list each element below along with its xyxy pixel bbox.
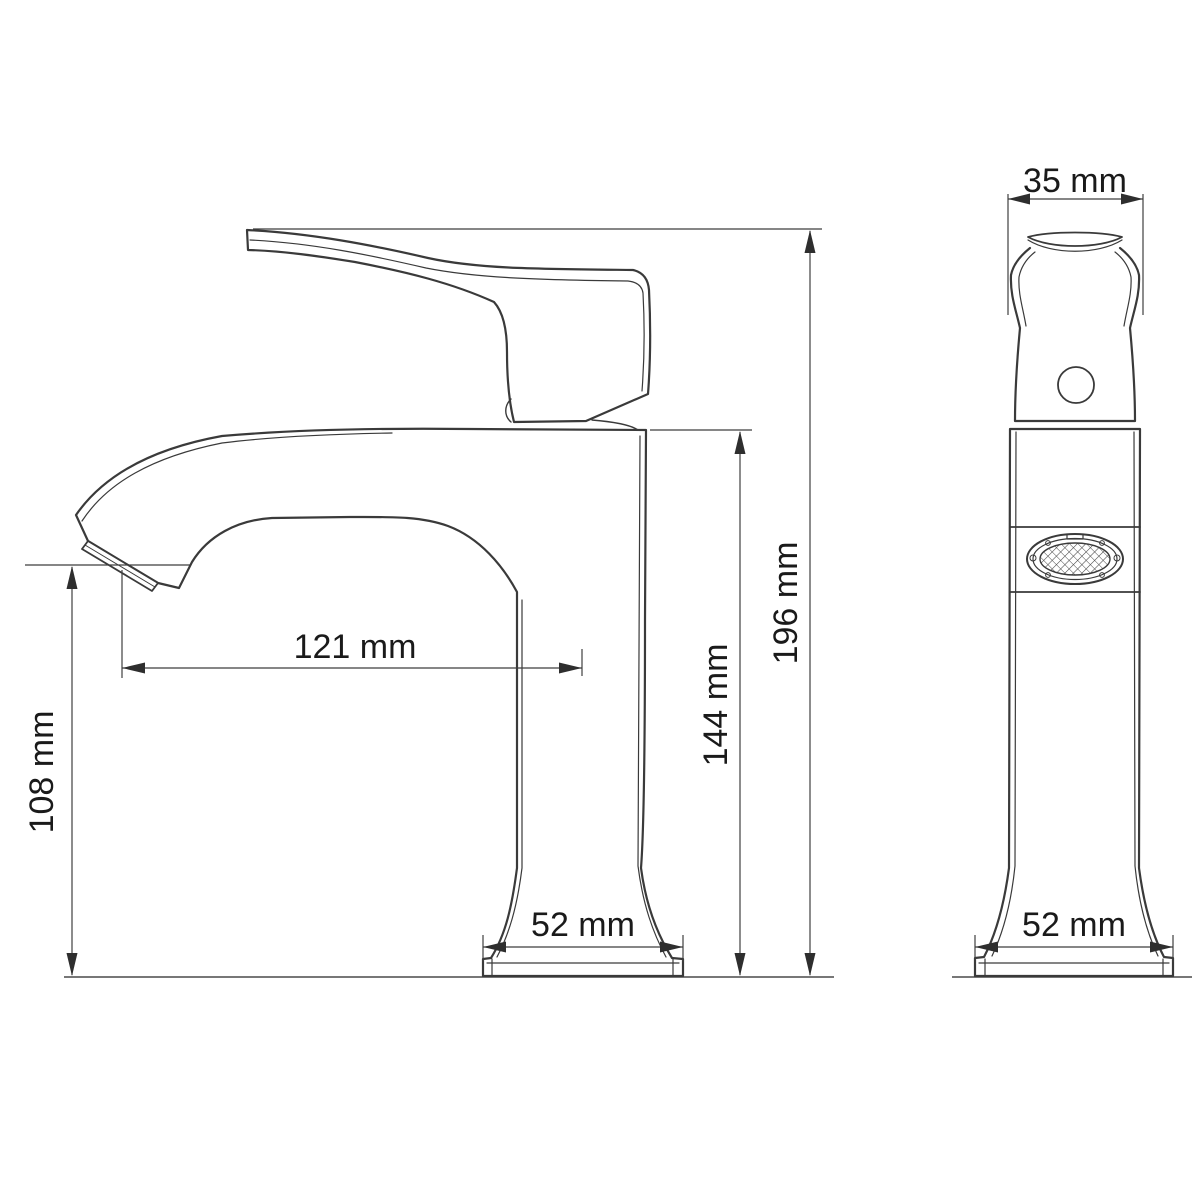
front-view: [975, 233, 1173, 977]
arrow-up-icon: [805, 230, 816, 253]
aerator-icon: [1027, 534, 1123, 584]
dim-label-108mm: 108 mm: [23, 711, 61, 834]
faucet-technical-drawing: 35 mm 196 mm 144 mm 121 mm: [0, 0, 1200, 1200]
front-view-body-path: [975, 429, 1173, 976]
dim-spout-top-height: 144 mm: [650, 430, 752, 976]
side-view-spout-body-path: [76, 429, 683, 976]
dim-label-121mm: 121 mm: [294, 628, 417, 666]
side-view-body-inner-left: [497, 600, 522, 957]
side-view-base-notches: [492, 959, 673, 975]
side-view-spout-inner-line: [82, 433, 392, 521]
arrow-right-icon: [559, 663, 582, 674]
arrow-up-icon: [67, 566, 78, 589]
side-view-aerator-plate-inner: [85, 545, 155, 587]
dimension-annotations: 35 mm 196 mm 144 mm 121 mm: [23, 162, 1173, 976]
dim-overall-height: 196 mm: [253, 229, 822, 976]
front-view-handle-cap: [1028, 233, 1122, 247]
front-view-body-inner-right: [1134, 432, 1158, 956]
arrow-down-icon: [67, 953, 78, 976]
front-view-base-notches: [985, 959, 1163, 975]
side-view-handle-arc: [592, 420, 638, 430]
arrow-up-icon: [735, 431, 746, 454]
side-view-handle-path: [247, 230, 650, 422]
side-view: [76, 230, 683, 976]
front-view-body-inner-left: [992, 432, 1016, 956]
dim-label-52mm-front: 52 mm: [1022, 906, 1126, 944]
dim-label-196mm: 196 mm: [767, 542, 805, 665]
front-view-handle-button: [1058, 367, 1094, 403]
front-view-handle-path: [1011, 248, 1139, 421]
arrow-left-icon: [122, 663, 145, 674]
dim-label-144mm: 144 mm: [697, 644, 735, 767]
front-view-handle-inner-left: [1019, 252, 1035, 326]
arrow-right-icon: [660, 942, 683, 953]
dim-outlet-height: 108 mm: [23, 565, 190, 976]
dim-label-52mm-side: 52 mm: [531, 906, 635, 944]
dim-handle-width-front: 35 mm: [1008, 162, 1143, 315]
arrow-down-icon: [805, 953, 816, 976]
dim-label-35mm: 35 mm: [1023, 162, 1127, 200]
arrow-down-icon: [735, 953, 746, 976]
front-view-handle-inner-right: [1115, 252, 1131, 326]
